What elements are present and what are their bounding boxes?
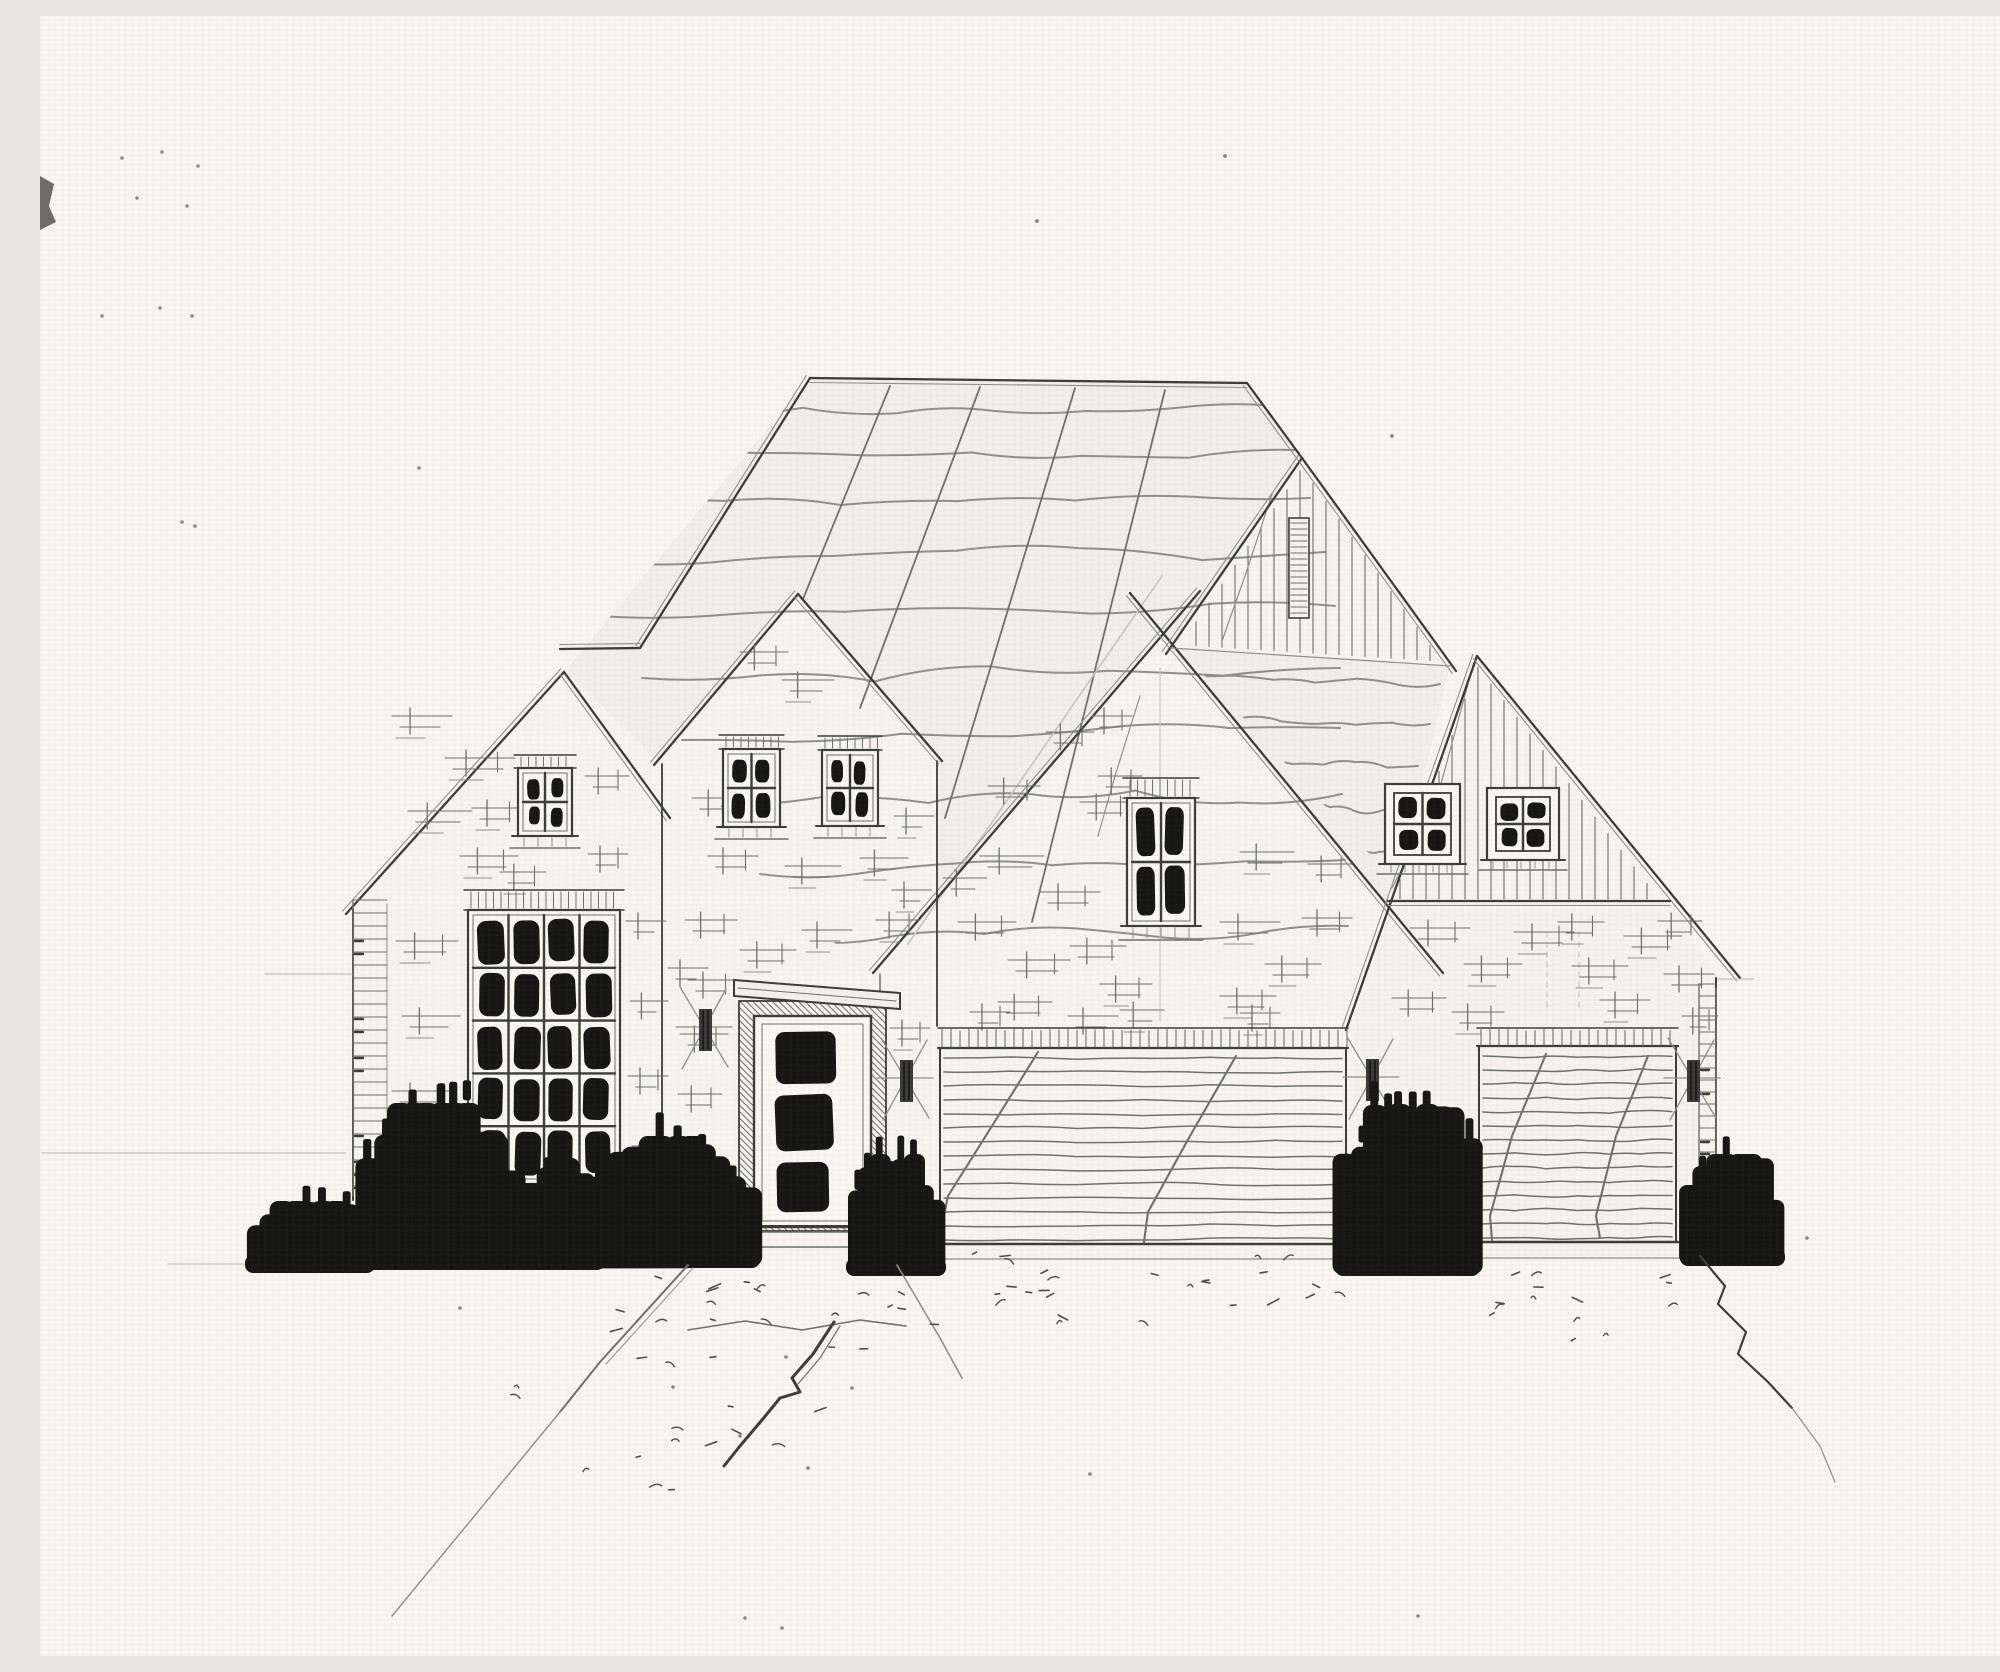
left-grid-window-part <box>514 1131 541 1175</box>
pavement-stipple-part <box>1604 1333 1609 1335</box>
shrub-left-of-door-part <box>698 1134 706 1160</box>
pavement-stipple-part <box>996 1300 1006 1306</box>
pavement-stipple-part <box>1260 1272 1267 1273</box>
elevation-sketch: Hand-drawn pencil and ink architectural … <box>40 16 2000 1656</box>
pavement-stipple-part <box>1572 1297 1582 1302</box>
pavement-stipple-part <box>772 1444 784 1447</box>
walkway-and-driveway-part <box>688 1320 906 1330</box>
pavement-stipple-part <box>1268 1299 1279 1305</box>
pavement-stipple-part <box>1204 1280 1209 1281</box>
pavement-stipple-part <box>637 1357 647 1358</box>
sketch-canvas <box>40 16 2000 1656</box>
paper-noise-part <box>1390 434 1394 438</box>
paper-noise-part <box>185 204 188 207</box>
pavement-stipple-part <box>672 1427 683 1430</box>
paper-noise-part <box>738 1434 742 1438</box>
center-left-gable-window-left-part <box>731 794 745 819</box>
shrub-far-right-part <box>1762 1200 1784 1264</box>
center-gable-tall-window-part <box>1136 867 1155 916</box>
shrub-between-garages-part <box>1458 1138 1483 1274</box>
center-left-gable-window-right <box>814 736 886 838</box>
left-grid-window-part <box>514 1027 542 1070</box>
shrub-left-of-door-part <box>737 1187 763 1266</box>
shrub-between-garages-part <box>1466 1118 1474 1141</box>
pavement-stipple-part <box>1669 1303 1678 1306</box>
pavement-stipple-part <box>616 1310 624 1312</box>
shrub-far-left-part <box>318 1187 326 1205</box>
pavement-stipple-part <box>650 1484 662 1487</box>
pavement-stipple-part <box>815 1408 826 1412</box>
paper-noise-part <box>100 314 103 317</box>
right-gable-window-left-part <box>1399 830 1419 851</box>
shrub-left-of-door-part <box>656 1112 664 1139</box>
shrub-far-right-part <box>1723 1136 1730 1165</box>
wall-sconce-icon-part <box>900 1060 913 1102</box>
paper-noise-part <box>850 1386 854 1390</box>
walkway-and-driveway <box>392 1256 1835 1616</box>
pavement-stipple <box>511 1252 1678 1490</box>
pavement-stipple-part <box>707 1301 715 1304</box>
pavement-stipple-part <box>899 1292 905 1295</box>
paper-noise-part <box>190 314 194 318</box>
paper-noise-part <box>671 1385 675 1389</box>
pavement-stipple-part <box>1574 1318 1580 1322</box>
pavement-stipple-part <box>710 1357 716 1358</box>
paper-noise-part <box>784 1355 788 1359</box>
pavement-stipple-part <box>1047 1293 1054 1297</box>
pavement-stipple-part <box>672 1439 680 1441</box>
center-gable-tall-window-part <box>1164 807 1184 855</box>
paper-noise-part <box>1035 219 1039 223</box>
center-left-gable-window-left-part <box>755 760 770 783</box>
pavement-stipple-part <box>656 1319 667 1322</box>
front-entry-door-part <box>775 1031 836 1084</box>
pavement-stipple-part <box>666 1362 674 1367</box>
paper-noise-part <box>196 164 199 167</box>
left-grid-window-part <box>550 973 577 1015</box>
shrub-left-of-door-part <box>728 1166 736 1191</box>
left-grid-window-part <box>477 1026 503 1070</box>
pavement-stipple-part <box>515 1385 519 1388</box>
pavement-stipple-part <box>744 1282 749 1283</box>
right-gable-window-right-part <box>1501 828 1517 847</box>
left-grid-window-part <box>548 1078 573 1121</box>
pavement-stipple-part <box>1490 1313 1495 1316</box>
center-left-gable-window-right-part <box>855 792 868 817</box>
pavement-stipple-part <box>1571 1338 1575 1340</box>
left-grid-window-part <box>583 1026 611 1069</box>
pavement-stipple-part <box>1313 1284 1320 1287</box>
shrub-between-garages-part <box>1394 1091 1402 1118</box>
pavement-stipple-part <box>1335 1292 1345 1296</box>
pavement-stipple-part <box>705 1442 716 1446</box>
right-gable-window-left <box>1377 784 1468 874</box>
paper-noise-part <box>780 1626 784 1630</box>
shrub-left-tall-part <box>363 1139 371 1160</box>
paper-noise-part <box>806 1466 810 1470</box>
pavement-stipple-part <box>583 1468 589 1471</box>
front-entry-door-part <box>774 1093 834 1151</box>
shrub-far-left-part <box>303 1186 311 1206</box>
pavement-stipple-part <box>655 1276 661 1278</box>
shrub-right-of-door-part <box>910 1139 917 1167</box>
pavement-stipple-part <box>728 1406 732 1407</box>
right-gable-window-right-part <box>1527 802 1546 819</box>
paper-noise-part <box>1416 1614 1420 1618</box>
gable-louver-vent <box>1289 518 1309 618</box>
pavement-stipple-part <box>1496 1304 1503 1308</box>
pavement-stipple-part <box>1058 1315 1068 1320</box>
right-gable-window-right <box>1479 788 1567 870</box>
walkway-and-driveway-part <box>392 1412 560 1616</box>
right-gable-window-right-part <box>1500 803 1518 821</box>
pavement-stipple-part <box>610 1328 622 1331</box>
left-gable-window-part <box>527 779 540 800</box>
shrub-between-garages-part <box>1370 1081 1378 1107</box>
paper-noise-part <box>1223 154 1227 158</box>
shrub-left-of-door-part <box>674 1125 682 1142</box>
pavement-stipple-part <box>1188 1284 1193 1286</box>
paper-noise-part <box>193 524 197 528</box>
left-grid-window-part <box>547 918 575 961</box>
pavement-stipple-part <box>1151 1273 1158 1275</box>
front-entry-door-part <box>776 1162 829 1213</box>
pavement-stipple-part <box>1057 1320 1062 1323</box>
pavement-stipple-part <box>511 1394 520 1398</box>
paper-noise-part <box>417 466 421 470</box>
pavement-stipple-part <box>732 1429 741 1433</box>
walkway-and-driveway-part <box>560 1265 688 1412</box>
shrub-far-right-part <box>1699 1156 1706 1178</box>
pavement-stipple-part <box>898 1308 906 1309</box>
left-grid-window-part <box>583 920 609 963</box>
left-gable-window-part <box>529 806 540 824</box>
pavement-stipple-part <box>1026 1292 1032 1293</box>
house-front-elevation <box>40 150 1835 1629</box>
shrub-between-garages-part <box>1423 1091 1431 1108</box>
pavement-stipple-part <box>1531 1296 1536 1299</box>
center-gable-tall-window <box>1119 778 1203 940</box>
paper-noise-part <box>120 156 123 159</box>
center-left-gable-window-left <box>715 735 788 839</box>
pavement-stipple-part <box>1007 1286 1016 1287</box>
pavement-stipple-part <box>754 1289 760 1292</box>
walkway-and-driveway-part <box>897 1265 962 1378</box>
right-gable-window-right-part <box>1526 829 1544 847</box>
pavement-stipple-part <box>1000 1255 1010 1256</box>
pavement-stipple-part <box>710 1319 715 1320</box>
pavement-stipple-part <box>1041 1270 1047 1273</box>
wall-sconce-icon-part <box>1687 1060 1700 1102</box>
center-left-gable-window-left-part <box>732 760 747 783</box>
left-grid-window-part <box>477 1077 503 1119</box>
pavement-stipple-part <box>1139 1321 1148 1325</box>
left-gable-window-part <box>551 778 563 797</box>
left-gable-window-part <box>551 808 563 827</box>
paper-noise-part <box>458 1306 462 1310</box>
pavement-stipple-part <box>1512 1272 1520 1275</box>
gable-louver-vent-part <box>1289 518 1309 618</box>
right-gable-window-left-part <box>1427 830 1445 851</box>
paper-noise-part <box>40 176 56 230</box>
pavement-stipple-part <box>1202 1281 1210 1283</box>
walkway-and-driveway-part <box>606 1268 693 1364</box>
paper-noise-part <box>158 306 161 309</box>
left-gable-window <box>510 755 580 848</box>
walkway-and-driveway-part <box>1700 1256 1792 1408</box>
pavement-stipple-part <box>1496 1302 1504 1303</box>
pavement-stipple-part <box>1667 1282 1672 1283</box>
pavement-stipple-part <box>1048 1277 1059 1280</box>
left-grid-window-part <box>514 974 540 1017</box>
left-grid-window-part <box>514 1079 540 1121</box>
pavement-stipple-part <box>859 1293 869 1295</box>
pavement-stipple-part <box>1306 1294 1314 1298</box>
paper-noise-part <box>135 196 138 199</box>
right-gable-window-left-part <box>1398 797 1417 818</box>
pavement-stipple-part <box>888 1305 892 1307</box>
left-grid-window-part <box>477 920 506 965</box>
left-grid-window-part <box>585 973 612 1017</box>
paper-noise-part <box>160 150 163 153</box>
paper-noise-part <box>1805 1236 1809 1240</box>
paper-noise-part <box>180 520 184 524</box>
shrub-far-left-part <box>343 1191 351 1216</box>
pavement-stipple-part <box>636 1456 640 1457</box>
shrub-left-tall-part <box>449 1082 457 1109</box>
center-left-gable-window-right-part <box>831 792 845 815</box>
left-grid-window-part <box>513 920 540 964</box>
center-left-gable-window-right-part <box>831 760 843 782</box>
center-left-gable-window-left-part <box>756 793 771 818</box>
pavement-stipple-part <box>832 1313 838 1315</box>
center-gable-tall-window-part <box>1135 807 1155 856</box>
shrub-left-tall-part <box>463 1080 471 1100</box>
paper-noise-part <box>1088 1472 1092 1476</box>
wall-sconce-icon-part <box>699 1009 712 1051</box>
main-roof-cap-part <box>560 648 640 649</box>
center-gable-tall-window-part <box>1164 865 1185 914</box>
pavement-stipple-part <box>757 1285 764 1289</box>
pavement-stipple-part <box>995 1294 999 1295</box>
shrub-right-of-door-part <box>924 1200 945 1274</box>
walkway-and-driveway-part <box>798 1326 840 1384</box>
center-left-gable-window-right-part <box>854 761 866 784</box>
walkway-and-driveway-part <box>1792 1408 1835 1482</box>
left-grid-window-part <box>547 1026 573 1069</box>
pavement-stipple-part <box>1532 1272 1542 1276</box>
shrub-right-of-door-part <box>897 1136 904 1163</box>
pavement-stipple-part <box>1660 1275 1670 1278</box>
left-grid-window-part <box>583 1078 609 1120</box>
left-grid-window-part <box>479 973 505 1017</box>
paper-noise-part <box>743 1616 747 1620</box>
right-gable-window-left-part <box>1426 798 1446 820</box>
